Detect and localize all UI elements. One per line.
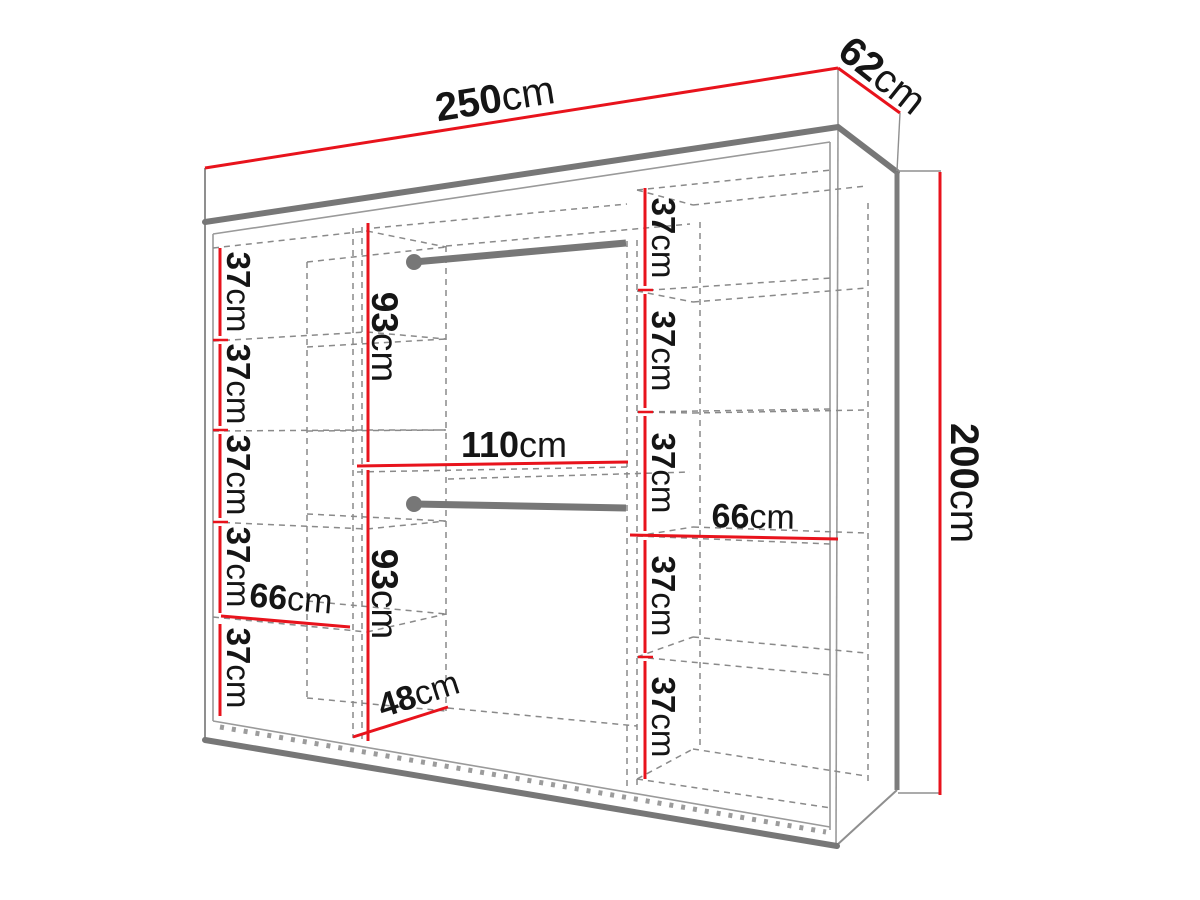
hanging-rails — [406, 243, 626, 512]
overall-height-label: 200cm — [942, 423, 986, 543]
left-shelf-5-label: 37cm — [220, 628, 257, 709]
overall-depth-label: 62cm — [830, 28, 934, 123]
upper-hanging-height-label: 93cm — [364, 292, 405, 382]
dimension-labels: 250cm 62cm 200cm 37cm 37cm 37cm 37cm 37c… — [220, 28, 986, 757]
left-shelf-1-label: 37cm — [220, 252, 257, 333]
lower-hanging-rail — [414, 504, 626, 508]
right-shelf-5-label: 37cm — [645, 677, 682, 758]
left-shelf-2-label: 37cm — [220, 344, 257, 425]
right-shelf-4-label: 37cm — [645, 556, 682, 637]
middle-width-label: 110cm — [461, 424, 567, 465]
right-shelf-1-label: 37cm — [645, 198, 682, 279]
overall-width-label: 250cm — [432, 68, 557, 130]
right-column-width-label: 66cm — [711, 497, 795, 536]
diagram-canvas: 250cm 62cm 200cm 37cm 37cm 37cm 37cm 37c… — [0, 0, 1200, 900]
right-shelf-3-label: 37cm — [645, 433, 682, 514]
upper-hanging-rail — [414, 243, 626, 262]
upper-rail-end-cap — [406, 254, 422, 270]
left-column-width-label: 66cm — [248, 576, 334, 621]
plinth-hatching — [220, 727, 826, 832]
wardrobe-dimension-diagram: 250cm 62cm 200cm 37cm 37cm 37cm 37cm 37c… — [0, 0, 1200, 900]
lower-rail-end-cap — [406, 496, 422, 512]
left-shelf-3-label: 37cm — [220, 435, 257, 516]
interior-dashed-lines — [213, 170, 868, 808]
right-shelf-2-label: 37cm — [645, 311, 682, 392]
lower-hanging-height-label: 93cm — [364, 549, 405, 639]
